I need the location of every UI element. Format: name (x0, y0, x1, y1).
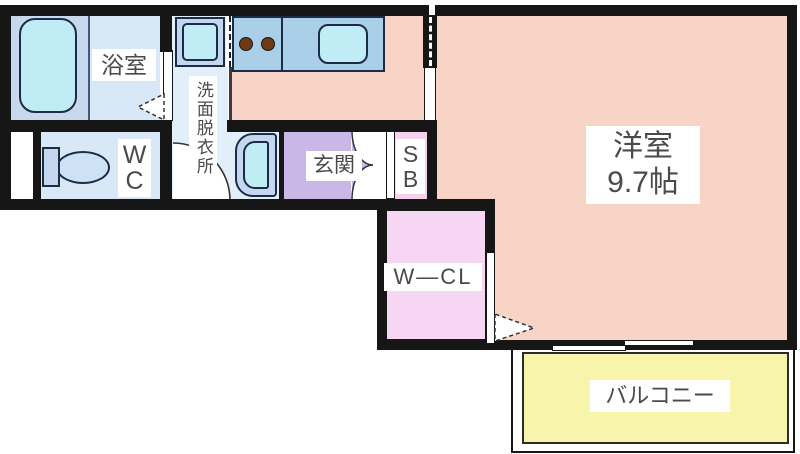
wall-partition-hanging (423, 15, 437, 68)
wall-wc-washroom (160, 120, 172, 199)
entrance-label-text: 玄関 (313, 155, 355, 177)
stove-burner-icon (239, 37, 253, 51)
balcony-label: バルコニー (590, 380, 730, 412)
wc-label-line1: W (123, 142, 147, 168)
toilet-bowl (56, 151, 110, 184)
wall-bath-washroom (160, 16, 172, 52)
wcl-label: W—CL (384, 263, 482, 291)
wash-basin (243, 141, 269, 189)
wcl-label-text: W—CL (394, 265, 473, 288)
western-room-name: 洋室 (613, 129, 673, 165)
wall-bottom-left-wing (0, 199, 377, 210)
wall-left (0, 5, 11, 210)
toilet-tank (42, 147, 60, 187)
wall-sb-right (427, 121, 437, 199)
kitchen-washroom-divider (229, 67, 232, 121)
western-room-size: 9.7帖 (607, 165, 679, 201)
partition-open-dashes (429, 17, 432, 66)
wcl-door-swing-icon (493, 312, 537, 344)
entrance-door-leaf (386, 131, 395, 199)
wall-hall-top (227, 120, 437, 132)
bathtub (19, 18, 77, 113)
living-sliding-door-leaf (424, 67, 436, 123)
shoe-box-label-line2: B (403, 167, 418, 191)
shoe-box-label-line1: S (403, 142, 418, 166)
counter-divider (281, 18, 283, 70)
wc-label: W C (118, 139, 151, 197)
shoe-box-label: S B (396, 139, 425, 194)
balcony-window-left-panel (552, 345, 626, 351)
kitchen-counter (232, 16, 385, 72)
washing-machine (182, 23, 218, 61)
balcony-window-right-panel (624, 340, 694, 346)
wc-label-line2: C (125, 168, 143, 194)
wall-bath-wc (0, 120, 172, 132)
wall-washroom-entrance (279, 131, 284, 199)
balcony-label-text: バルコニー (605, 384, 715, 407)
western-room-label: 洋室 9.7帖 (586, 126, 700, 204)
wall-wc-niche (33, 131, 41, 199)
kitchen-sink (318, 24, 368, 64)
washroom-label: 洗面脱衣所 (189, 76, 217, 180)
bathroom-label-text: 浴室 (101, 53, 147, 77)
bathroom-label: 浴室 (92, 49, 156, 81)
floor-plan: 浴室 洗面脱衣所 W C 玄関 S B 洋室 9.7帖 W—CL バルコニー (0, 0, 800, 454)
bathroom-door-swing-icon (134, 90, 168, 124)
wall-right (787, 5, 797, 350)
wall-top (0, 5, 797, 16)
washroom-label-text: 洗面脱衣所 (194, 81, 212, 176)
entrance-label: 玄関 (306, 151, 362, 181)
stove-burner-icon (261, 37, 275, 51)
kitchen-open-boundary-dashes (229, 16, 231, 67)
